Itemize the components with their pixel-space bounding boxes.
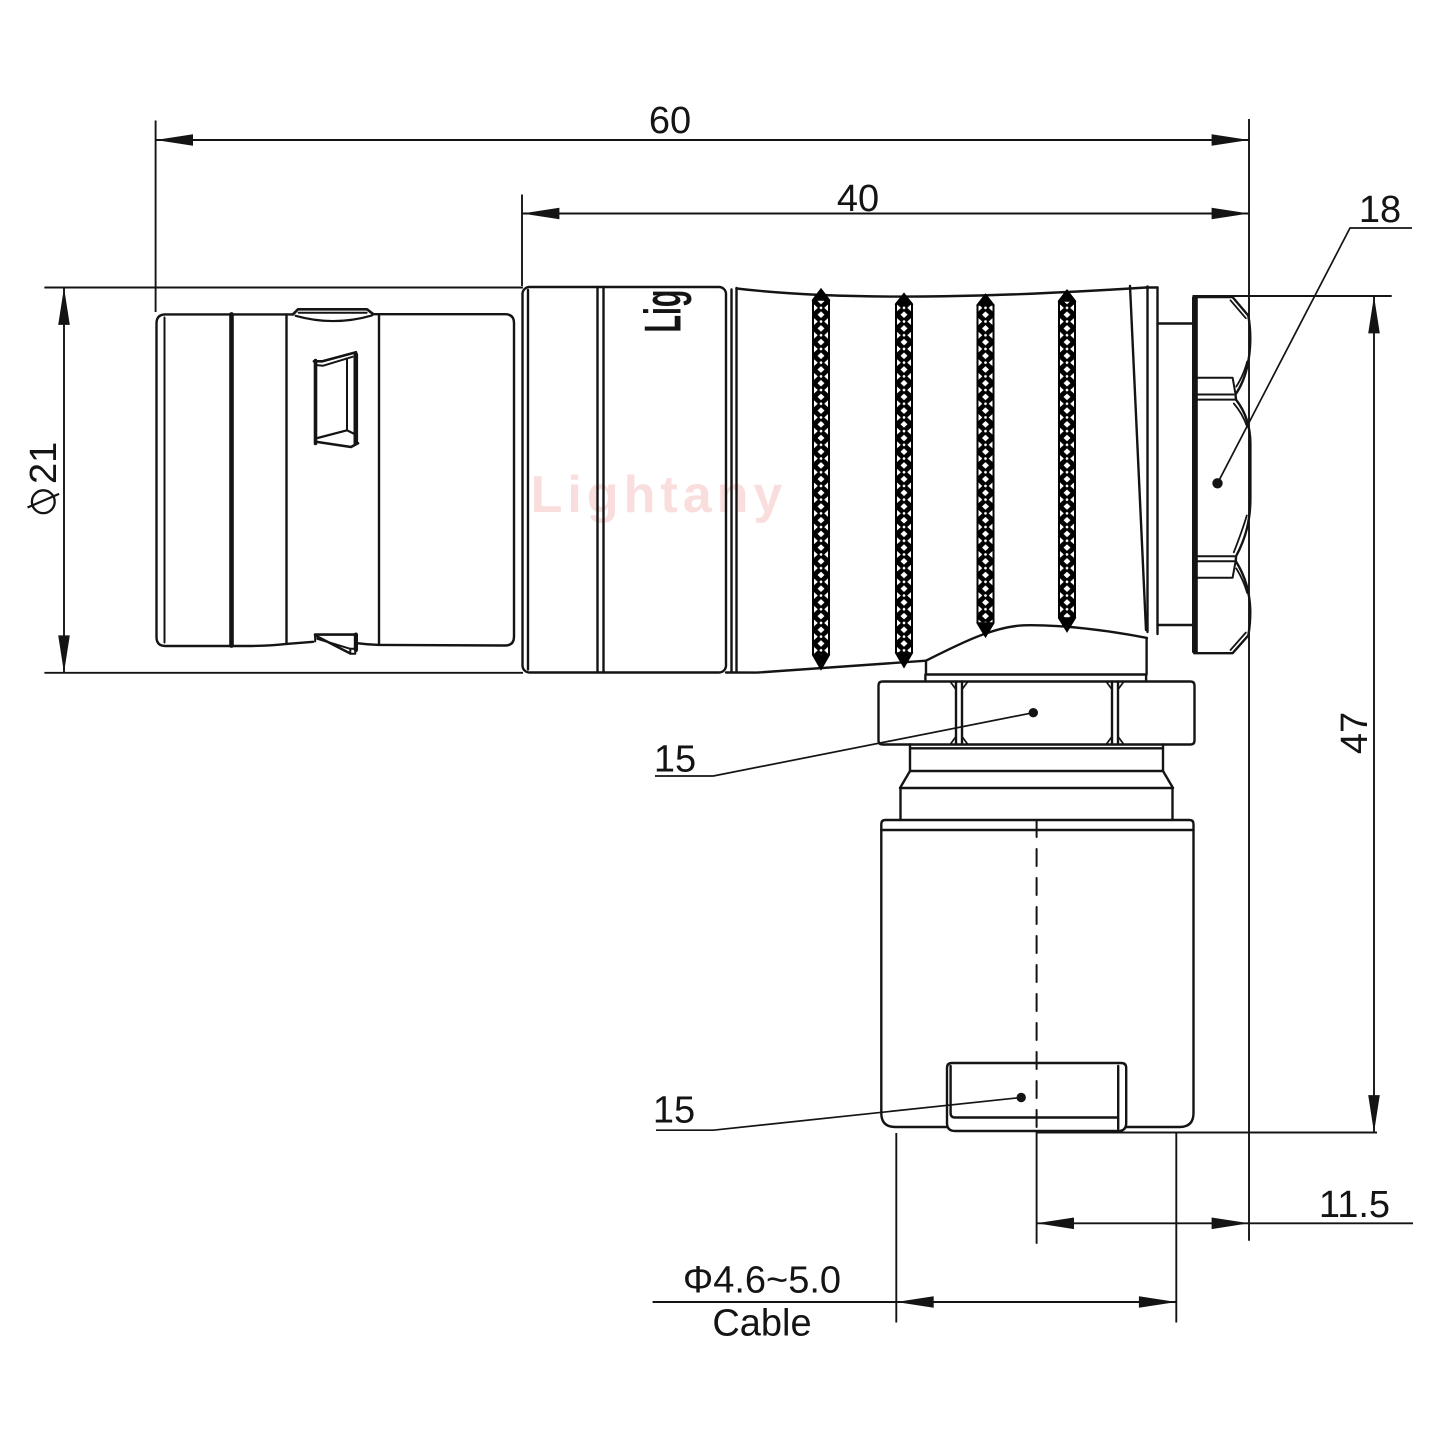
svg-text:Lig: Lig [633,290,691,333]
svg-text:47: 47 [1334,712,1376,754]
svg-text:60: 60 [649,100,691,142]
svg-text:11.5: 11.5 [1319,1184,1390,1226]
svg-text:Lightany: Lightany [531,466,788,524]
svg-text:15: 15 [653,1090,695,1132]
svg-text:15: 15 [654,739,696,781]
svg-text:18: 18 [1359,189,1401,231]
svg-text:21: 21 [23,442,65,484]
svg-text:Cable: Cable [712,1303,811,1345]
svg-text:Φ4.6~5.0: Φ4.6~5.0 [683,1259,841,1301]
svg-text:40: 40 [837,178,879,220]
